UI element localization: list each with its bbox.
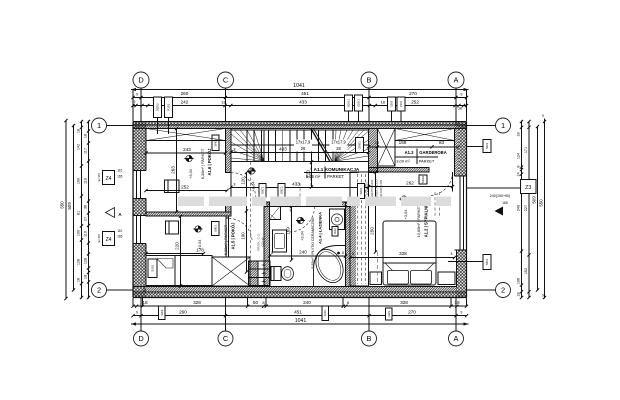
svg-text:120: 120 — [306, 170, 311, 178]
svg-text:SN01: SN01 — [214, 139, 218, 147]
svg-text:433: 433 — [292, 182, 300, 187]
svg-text:110: 110 — [117, 169, 122, 173]
svg-text:+3,04: +3,04 — [300, 231, 304, 241]
svg-text:8: 8 — [352, 252, 354, 256]
svg-text:252: 252 — [181, 185, 189, 190]
svg-text:S201: S201 — [485, 142, 489, 149]
svg-text:433: 433 — [299, 99, 307, 104]
svg-text:C: C — [223, 334, 229, 343]
svg-text:D: D — [138, 76, 143, 85]
svg-text:A1.5 | POKÓJ: A1.5 | POKÓJ — [231, 222, 236, 250]
svg-text:50: 50 — [253, 300, 259, 305]
svg-text:A: A — [454, 334, 459, 343]
svg-text:18: 18 — [375, 141, 379, 145]
svg-text:18: 18 — [76, 129, 80, 133]
svg-text:8: 8 — [234, 148, 236, 152]
svg-text:SD03.1: SD03.1 — [347, 98, 351, 107]
svg-text:+3,04: +3,04 — [251, 182, 255, 192]
svg-text:A1.1: A1.1 — [314, 167, 324, 172]
svg-text:18: 18 — [516, 292, 520, 296]
svg-text:PARKET: PARKET — [327, 174, 344, 179]
svg-text:GARDEROBA: GARDEROBA — [419, 150, 446, 155]
svg-text:B: B — [367, 334, 372, 343]
svg-text:SD01: SD01 — [421, 175, 425, 183]
svg-text:Z3: Z3 — [525, 185, 531, 191]
svg-text:9: 9 — [461, 93, 463, 97]
svg-text:128: 128 — [76, 259, 80, 265]
svg-text:270: 270 — [408, 309, 416, 314]
svg-text:252: 252 — [411, 99, 419, 104]
svg-text:+3,04: +3,04 — [189, 169, 193, 179]
svg-text:433: 433 — [279, 147, 287, 152]
svg-text:451: 451 — [294, 309, 302, 314]
svg-text:83: 83 — [439, 140, 445, 145]
svg-text:8: 8 — [342, 251, 344, 255]
svg-text:S001: S001 — [213, 225, 217, 232]
svg-text:17x17,9: 17x17,9 — [331, 139, 346, 144]
svg-text:8: 8 — [451, 252, 453, 256]
svg-text:550: 550 — [538, 199, 543, 207]
svg-text:240: 240 — [516, 205, 520, 211]
svg-text:169: 169 — [286, 227, 291, 235]
svg-text:S203: S203 — [387, 310, 391, 317]
svg-text:328: 328 — [193, 300, 201, 305]
svg-text:1: 1 — [501, 121, 505, 130]
svg-text:A1.2 | SYPIALNIA: A1.2 | SYPIALNIA — [424, 203, 429, 238]
svg-text:S002: S002 — [333, 228, 337, 235]
svg-text:9: 9 — [542, 114, 544, 118]
svg-text:27: 27 — [83, 217, 87, 221]
svg-text:8: 8 — [516, 166, 520, 168]
svg-text:8,22m² | PARKET: 8,22m² | PARKET — [223, 224, 228, 255]
svg-text:Z4: Z4 — [106, 176, 112, 182]
svg-text:18: 18 — [83, 275, 87, 279]
svg-text:328: 328 — [399, 251, 407, 256]
svg-text:18: 18 — [516, 132, 520, 136]
svg-text:242: 242 — [181, 99, 189, 104]
svg-text:451: 451 — [301, 91, 309, 96]
svg-text:C: C — [223, 76, 229, 85]
svg-text:Z4: Z4 — [106, 237, 112, 243]
svg-text:262: 262 — [406, 181, 414, 186]
svg-text:165: 165 — [117, 174, 123, 178]
svg-text:SD03: SD03 — [156, 103, 160, 111]
svg-text:227: 227 — [524, 205, 528, 211]
svg-text:100: 100 — [76, 230, 80, 236]
svg-text:18: 18 — [142, 300, 148, 305]
svg-text:18: 18 — [381, 99, 386, 104]
svg-text:S203.1: S203.1 — [357, 98, 361, 107]
svg-text:190: 190 — [240, 232, 245, 240]
svg-text:240(150+90): 240(150+90) — [490, 194, 510, 198]
svg-text:1041: 1041 — [293, 83, 305, 89]
svg-text:28: 28 — [336, 146, 341, 151]
svg-text:165: 165 — [502, 201, 508, 205]
svg-text:240: 240 — [303, 300, 311, 305]
svg-text:100: 100 — [76, 178, 80, 184]
svg-text:9: 9 — [134, 100, 136, 104]
svg-text:S203: S203 — [323, 310, 327, 317]
svg-text:S203: S203 — [390, 100, 394, 107]
svg-text:81: 81 — [76, 211, 80, 215]
svg-text:243: 243 — [183, 147, 191, 152]
svg-text:263: 263 — [171, 166, 176, 174]
svg-text:S001: S001 — [359, 187, 363, 194]
svg-text:328: 328 — [400, 300, 408, 305]
svg-text:128: 128 — [83, 258, 87, 264]
svg-text:18: 18 — [458, 107, 462, 111]
svg-text:1: 1 — [97, 121, 101, 130]
svg-text:KOMUNIKACJA: KOMUNIKACJA — [325, 167, 360, 172]
svg-text:9: 9 — [136, 93, 138, 97]
svg-text:8: 8 — [271, 251, 273, 255]
svg-text:D: D — [138, 334, 143, 343]
svg-text:CO+W: CO+W — [261, 237, 265, 246]
svg-text:+3,04: +3,04 — [404, 210, 408, 220]
svg-text:P101: P101 — [167, 103, 171, 110]
svg-text:169: 169 — [399, 140, 407, 145]
svg-text:220: 220 — [175, 242, 180, 250]
svg-text:B: B — [367, 76, 372, 85]
svg-text:509: 509 — [531, 196, 536, 204]
svg-text:270: 270 — [409, 91, 417, 96]
svg-text:S203: S203 — [160, 309, 164, 316]
svg-text:142: 142 — [76, 144, 80, 150]
svg-text:240: 240 — [299, 250, 307, 255]
svg-text:SN01: SN01 — [358, 141, 362, 149]
svg-text:WENTYLACJI: WENTYLACJI — [370, 180, 374, 199]
svg-text:18: 18 — [221, 99, 226, 104]
svg-text:S0C1: S0C1 — [261, 186, 265, 194]
svg-text:18: 18 — [454, 300, 460, 305]
svg-text:9: 9 — [136, 310, 138, 314]
svg-text:+3,04: +3,04 — [198, 240, 202, 250]
svg-text:106: 106 — [516, 278, 520, 284]
svg-text:124: 124 — [516, 153, 520, 159]
svg-text:18: 18 — [83, 134, 87, 138]
svg-text:8: 8 — [234, 183, 236, 187]
svg-text:14: 14 — [516, 172, 520, 176]
svg-text:9: 9 — [542, 294, 544, 298]
svg-text:np=115: np=115 — [97, 233, 101, 243]
svg-text:A1.4 | ŁAZIENKA: A1.4 | ŁAZIENKA — [318, 212, 323, 244]
svg-text:1041: 1041 — [295, 318, 307, 324]
svg-text:28: 28 — [301, 146, 306, 151]
svg-text:A1.3: A1.3 — [405, 150, 415, 155]
svg-text:P101: P101 — [399, 100, 403, 107]
svg-text:117: 117 — [83, 148, 87, 154]
svg-text:A1.6 | POKÓJ: A1.6 | POKÓJ — [207, 148, 212, 176]
svg-text:250: 250 — [370, 227, 375, 235]
svg-text:171: 171 — [524, 147, 528, 153]
svg-text:509: 509 — [67, 202, 72, 210]
svg-text:9: 9 — [461, 310, 463, 314]
svg-text:PARKET: PARKET — [419, 158, 435, 163]
svg-text:2: 2 — [501, 286, 505, 295]
svg-text:S0C2: S0C2 — [280, 186, 284, 194]
svg-text:SO-KO(1) DO: SO-KO(1) DO — [379, 179, 383, 198]
svg-text:110: 110 — [117, 229, 122, 233]
svg-text:152: 152 — [524, 268, 528, 274]
svg-text:260: 260 — [179, 309, 187, 314]
svg-text:S201: S201 — [485, 258, 489, 265]
svg-text:550: 550 — [60, 201, 65, 209]
svg-text:36: 36 — [83, 205, 87, 209]
svg-text:18: 18 — [76, 278, 80, 282]
svg-text:165: 165 — [117, 235, 123, 239]
svg-text:A: A — [454, 76, 459, 85]
svg-text:110: 110 — [83, 231, 87, 237]
svg-text:2: 2 — [97, 286, 101, 295]
svg-text:S201: S201 — [151, 264, 155, 271]
svg-text:110: 110 — [83, 178, 87, 184]
svg-text:17x17,9: 17x17,9 — [296, 139, 311, 144]
svg-text:120: 120 — [240, 177, 245, 185]
svg-text:np=115: np=115 — [97, 172, 101, 182]
svg-text:260: 260 — [181, 91, 189, 96]
svg-text:3,09 m²: 3,09 m² — [396, 158, 410, 163]
